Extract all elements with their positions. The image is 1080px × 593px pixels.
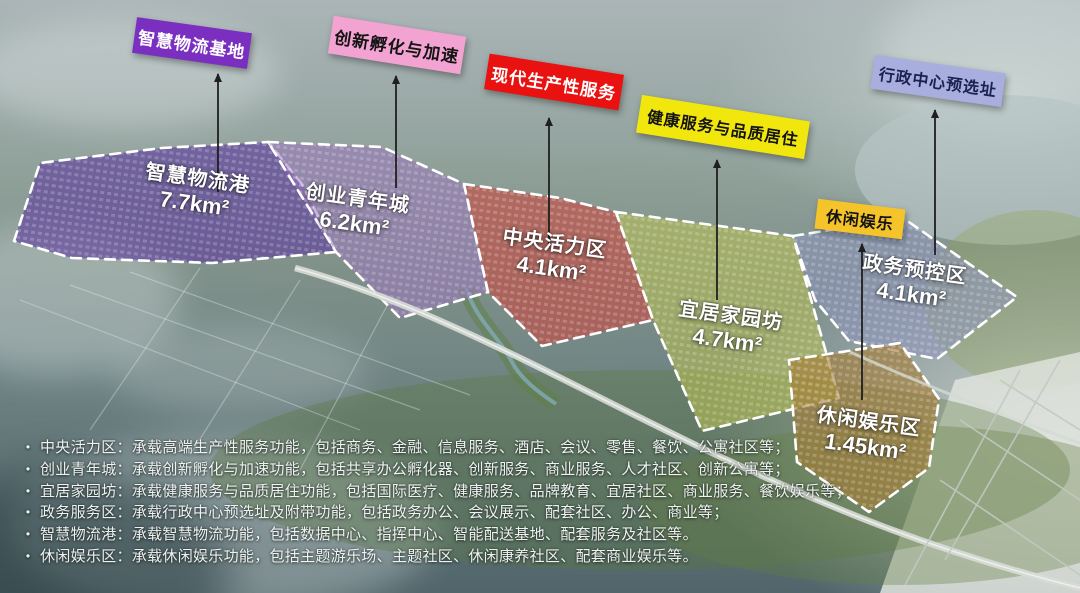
legend-item: • 中央活力区：承载高端生产性服务功能，包括商务、金融、信息服务、酒店、会议、零… (16, 437, 836, 459)
bullet-icon: • (16, 437, 40, 459)
planning-map-canvas: 智慧物流基地 创新孵化与加速 现代生产性服务 健康服务与品质居住 行政中心预选址… (0, 0, 1080, 593)
legend-item: • 政务服务区：承载行政中心预选址及附带功能，包括政务办公、会议展示、配套社区、… (16, 502, 836, 524)
bullet-icon: • (16, 481, 40, 503)
legend-item: • 休闲娱乐区：承载休闲娱乐功能，包括主题游乐场、主题社区、休闲康养社区、配套商… (16, 546, 836, 568)
bullet-icon: • (16, 546, 40, 568)
zone-function-legend: • 中央活力区：承载高端生产性服务功能，包括商务、金融、信息服务、酒店、会议、零… (16, 437, 836, 568)
legend-text: 智慧物流港：承载智慧物流功能，包括数据中心、指挥中心、智能配送基地、配套服务及社… (40, 524, 698, 546)
legend-text: 政务服务区：承载行政中心预选址及附带功能，包括政务办公、会议展示、配套社区、办公… (40, 502, 729, 524)
bullet-icon: • (16, 524, 40, 546)
bullet-icon: • (16, 459, 40, 481)
bullet-icon: • (16, 502, 40, 524)
legend-text: 中央活力区：承载高端生产性服务功能，包括商务、金融、信息服务、酒店、会议、零售、… (40, 437, 790, 459)
legend-item: • 宜居家园坊：承载健康服务与品质居住功能，包括国际医疗、健康服务、品牌教育、宜… (16, 481, 836, 503)
legend-text: 创业青年城：承载创新孵化与加速功能，包括共享办公孵化器、创新服务、商业服务、人才… (40, 459, 790, 481)
legend-item: • 智慧物流港：承载智慧物流功能，包括数据中心、指挥中心、智能配送基地、配套服务… (16, 524, 836, 546)
legend-text: 宜居家园坊：承载健康服务与品质居住功能，包括国际医疗、健康服务、品牌教育、宜居社… (40, 481, 851, 503)
legend-text: 休闲娱乐区：承载休闲娱乐功能，包括主题游乐场、主题社区、休闲康养社区、配套商业娱… (40, 546, 698, 568)
legend-item: • 创业青年城：承载创新孵化与加速功能，包括共享办公孵化器、创新服务、商业服务、… (16, 459, 836, 481)
